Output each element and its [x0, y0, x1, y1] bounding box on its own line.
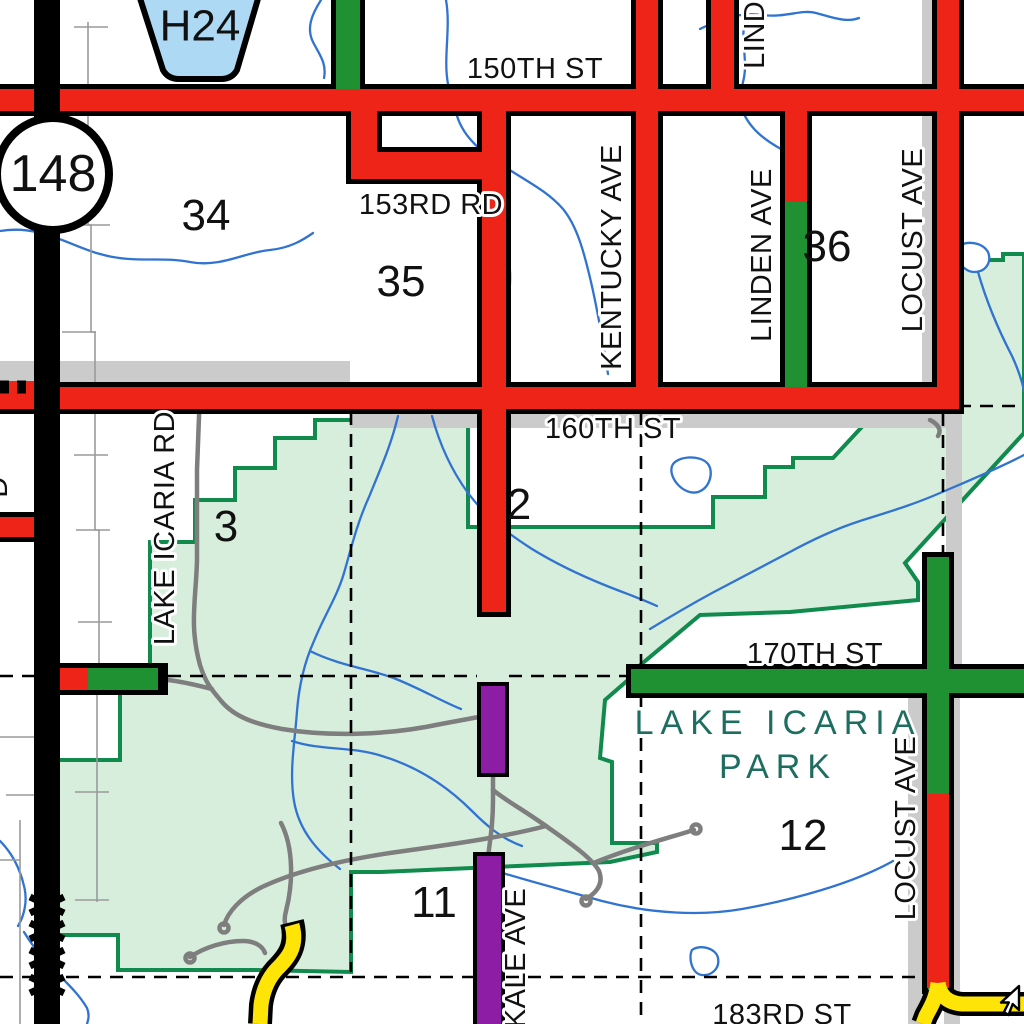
section-12: 12	[779, 811, 828, 860]
label-183rd-st: 183RD ST	[712, 999, 851, 1024]
label-linden-ave: LINDEN AVE	[746, 168, 778, 342]
label-160th-st: 160TH ST	[545, 413, 681, 445]
section-34: 34	[182, 191, 231, 240]
park-name-line1: LAKE ICARIA	[635, 704, 922, 742]
label-kentucky-ave: KENTUCKY AVE	[596, 144, 628, 370]
section-11: 11	[411, 878, 457, 927]
county-route-number: H24	[160, 2, 241, 51]
label-locust-ave-north: LOCUST AVE	[897, 148, 929, 332]
section-3: 3	[214, 502, 238, 551]
state-route-shield: 148	[0, 118, 109, 230]
label-kale-ave: KALE AVE	[500, 888, 532, 1024]
label-170th-st: 170TH ST	[747, 638, 883, 670]
map-viewport[interactable]: 148 H24 150TH ST 153RD RD 160TH ST 170TH…	[0, 0, 1024, 1024]
map-canvas[interactable]: 148 H24 150TH ST 153RD RD 160TH ST 170TH…	[0, 0, 1024, 1024]
state-route-number: 148	[10, 145, 97, 203]
section-36: 36	[803, 222, 852, 271]
section-35: 35	[377, 257, 426, 306]
label-153rd-rd: 153RD RD	[359, 189, 503, 221]
label-locust-ave-south: LOCUST AVE	[890, 736, 922, 920]
label-lake-icaria-rd: LAKE ICARIA RD	[149, 411, 181, 645]
label-150th-st: 150TH ST	[467, 53, 603, 85]
section-2: 2	[507, 480, 531, 529]
label-edge-partial: D	[0, 476, 14, 497]
label-linden-ave-north: LINDEN AVE	[739, 0, 771, 69]
park-name-line2: PARK	[719, 748, 837, 786]
